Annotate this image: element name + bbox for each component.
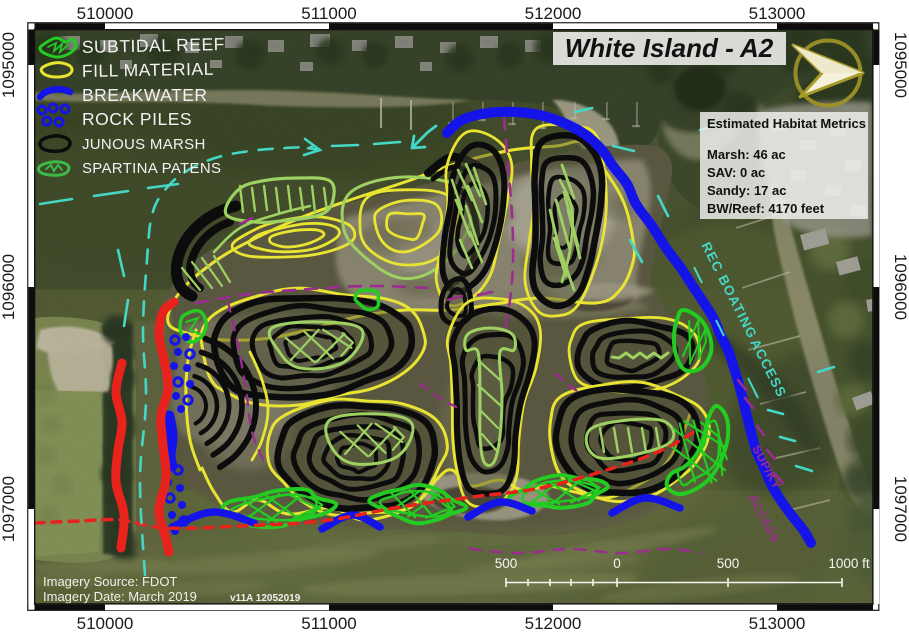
svg-text:FILL MATERIAL: FILL MATERIAL	[82, 59, 214, 81]
svg-text:512000: 512000	[525, 614, 582, 633]
svg-text:510000: 510000	[77, 614, 134, 633]
svg-text:White Island - A2: White Island - A2	[565, 33, 774, 63]
svg-text:0: 0	[613, 556, 621, 571]
svg-text:SAV: 0 ac: SAV: 0 ac	[707, 165, 765, 180]
svg-text:510000: 510000	[77, 4, 134, 23]
svg-text:Marsh: 46 ac: Marsh: 46 ac	[707, 147, 786, 162]
svg-text:513000: 513000	[749, 4, 806, 23]
svg-text:v11A 12052019: v11A 12052019	[230, 593, 301, 604]
svg-text:ROCK PILES: ROCK PILES	[82, 109, 192, 129]
svg-text:511000: 511000	[301, 4, 356, 23]
svg-text:1097000: 1097000	[0, 476, 18, 542]
svg-text:511000: 511000	[301, 614, 356, 633]
svg-text:SUBTIDAL REEF: SUBTIDAL REEF	[82, 34, 225, 57]
svg-text:1096000: 1096000	[0, 254, 18, 320]
svg-text:Estimated Habitat Metrics: Estimated Habitat Metrics	[707, 116, 866, 131]
svg-text:500: 500	[717, 556, 740, 571]
svg-text:BW/Reef: 4170 feet: BW/Reef: 4170 feet	[707, 201, 825, 216]
svg-text:500: 500	[495, 556, 518, 571]
svg-text:512000: 512000	[525, 4, 582, 23]
svg-text:1000 ft: 1000 ft	[828, 556, 870, 571]
svg-text:Imagery Date: March 2019: Imagery Date: March 2019	[43, 589, 197, 604]
svg-text:1096000: 1096000	[891, 254, 909, 320]
svg-text:BREAKWATER: BREAKWATER	[82, 85, 208, 105]
svg-text:513000: 513000	[749, 614, 806, 633]
svg-text:JUNOUS MARSH: JUNOUS MARSH	[82, 136, 206, 153]
svg-text:1095000: 1095000	[891, 32, 909, 98]
svg-text:1095000: 1095000	[0, 32, 18, 98]
svg-text:1097000: 1097000	[891, 476, 909, 542]
svg-text:Imagery Source: FDOT: Imagery Source: FDOT	[43, 574, 177, 589]
svg-text:Sandy: 17 ac: Sandy: 17 ac	[707, 183, 787, 198]
svg-text:SPARTINA PATENS: SPARTINA PATENS	[82, 160, 221, 177]
